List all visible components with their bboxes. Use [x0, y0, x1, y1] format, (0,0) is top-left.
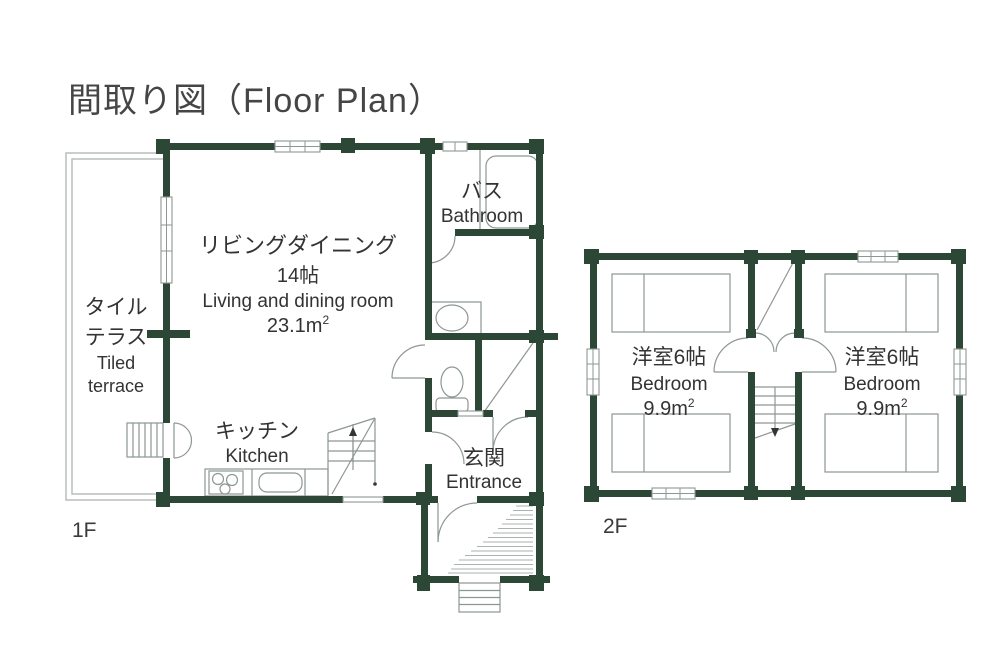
toilet-door: [392, 345, 425, 378]
beds-2f: [612, 274, 938, 472]
closet-diagonal-2f: [757, 259, 795, 330]
washbasin: [430, 302, 481, 334]
toilet: [436, 367, 468, 412]
bathroom-door: [428, 236, 455, 263]
bedroom-right-label-en: Bedroom: [843, 374, 920, 395]
bed: [825, 414, 938, 472]
terrace-label-en1: Tiled: [97, 353, 135, 373]
bedroom-left-side-window: [587, 349, 599, 395]
floor-2f: 洋室6帖 Bedroom 9.9m2 洋室6帖 Bedroom 9.9m2 2F: [584, 249, 966, 538]
exterior-steps: [459, 583, 500, 612]
bedroom-right-side-window: [954, 349, 966, 395]
floor-plan-canvas: 間取り図（Floor Plan）: [0, 0, 1000, 666]
bedroom-left-label-en: Bedroom: [630, 374, 707, 395]
wall-stub-right: [543, 333, 558, 340]
bathroom-label-jp: バス: [461, 180, 503, 203]
living-top-window: [275, 141, 320, 152]
bathroom-window: [443, 142, 467, 151]
terrace-steps: [127, 423, 163, 457]
bedroom-right-label-jp: 洋室6帖: [845, 346, 920, 369]
front-door: [438, 503, 477, 542]
bed: [825, 274, 938, 332]
bathroom-label-en: Bathroom: [441, 206, 523, 227]
living-label-jp: リビングダイニング: [199, 233, 397, 258]
floor-label-1f: 1F: [72, 519, 97, 542]
bedroom-left-label-jp: 洋室6帖: [632, 346, 707, 369]
closet-diagonal-1f: [484, 343, 533, 412]
bed: [612, 274, 730, 332]
living-side-window: [161, 197, 172, 283]
floor-label-2f: 2F: [603, 515, 628, 538]
porch-hatch: [448, 506, 533, 573]
stairs-up-arrow: [349, 427, 357, 436]
terrace-label-jp2: テラス: [85, 326, 148, 349]
entrance-hall-door: [432, 432, 464, 464]
entrance-label-en: Entrance: [446, 472, 522, 493]
kitchen-label-jp: キッチン: [215, 420, 299, 443]
bedroom-right-door: [802, 338, 836, 372]
living-size-jp: 14帖: [277, 264, 319, 287]
windows-1f: [161, 141, 467, 283]
terrace-door: [174, 423, 192, 458]
bedroom-left-area: 9.9m2: [643, 396, 694, 420]
floor-1f: リビングダイニング 14帖 Living and dining room 23.…: [66, 138, 558, 612]
bed: [612, 414, 730, 472]
terrace-label-jp1: タイル: [85, 296, 148, 319]
living-area: 23.1m2: [267, 313, 330, 337]
bedroom-left-door: [714, 338, 748, 372]
staircase-2f: [755, 387, 795, 438]
bedroom-right-area: 9.9m2: [856, 396, 907, 420]
kitchen-counter: [205, 469, 328, 496]
entrance-label-jp: 玄関: [463, 447, 505, 470]
page-title: 間取り図（Floor Plan）: [68, 82, 443, 120]
living-label-en: Living and dining room: [202, 291, 393, 312]
bedroom-left-bottom-window: [652, 488, 695, 499]
bedroom-right-top-window: [858, 251, 898, 262]
terrace-label-en2: terrace: [88, 376, 144, 396]
closet-double-doors: [755, 333, 795, 352]
staircase-1f: [328, 418, 377, 495]
floor-plan-page: 間取り図（Floor Plan）: [0, 0, 1000, 666]
door-arcs-2f: [714, 333, 836, 372]
wall-stub-terrace: [147, 330, 190, 338]
kitchen-label-en: Kitchen: [225, 446, 288, 467]
